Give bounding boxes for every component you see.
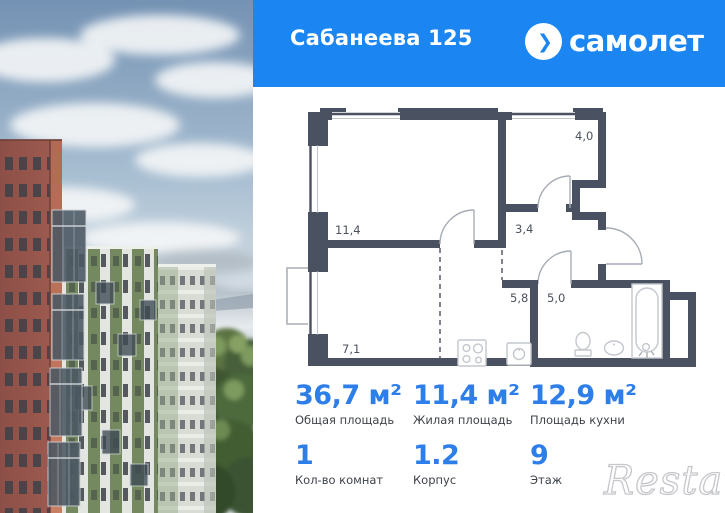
stat-total-area: 36,7 м² Общая площадь [295,383,425,427]
stat-label: Общая площадь [295,413,425,427]
stat-kitchen-area: 12,9 м² Площадь кухни [530,383,660,427]
stat-label: Кол-во комнат [295,473,425,487]
sink-icon [507,343,531,365]
stat-label: Корпус [413,473,543,487]
header: Сабанеева 125 ❯ самолет [253,0,725,87]
balconies [48,210,86,506]
stat-living-area: 11,4 м² Жилая площадь [413,383,543,427]
watermark: Restate [604,461,725,501]
room-label-kitchen-living: 7,1 [342,342,360,356]
room-label-bathroom: 5,0 [547,291,565,305]
room-label-hall: 3,4 [515,222,533,236]
complex-title: Сабанеева 125 [290,26,473,50]
listing-card: Сабанеева 125 ❯ самолет [0,0,725,513]
toilet-icon [575,333,591,357]
stat-label: Жилая площадь [413,413,543,427]
entrance-door [606,228,642,264]
storage-door [538,176,570,208]
building-photo [0,0,253,513]
room-label-living: 11,4 [335,223,361,237]
bath-sink-icon [605,341,624,355]
bathtub-icon [632,284,662,358]
stat-value: 1 [295,443,425,469]
stat-rooms: 1 Кол-во комнат [295,443,425,487]
stat-value: 36,7 м² [295,383,425,409]
room-label-kitchen-nook: 5,8 [510,291,528,305]
stat-building: 1.2 Корпус [413,443,543,487]
tower-building [158,264,216,513]
stat-value: 11,4 м² [413,383,543,409]
stat-label: Площадь кухни [530,413,660,427]
samolet-logo-icon: ❯ [525,23,562,60]
room-label-storage: 4,0 [575,129,593,143]
floorplan: 11,4 4,0 3,4 5,8 5,0 7,1 [280,100,720,380]
stove-icon [458,340,486,366]
balcony-outline [287,268,308,324]
room-door [440,210,474,244]
bathroom-door [538,251,571,284]
brand-name: самолет [569,23,704,60]
stat-value: 1.2 [413,443,543,469]
stat-value: 12,9 м² [530,383,660,409]
samolet-logo: ❯ самолет [525,23,704,60]
